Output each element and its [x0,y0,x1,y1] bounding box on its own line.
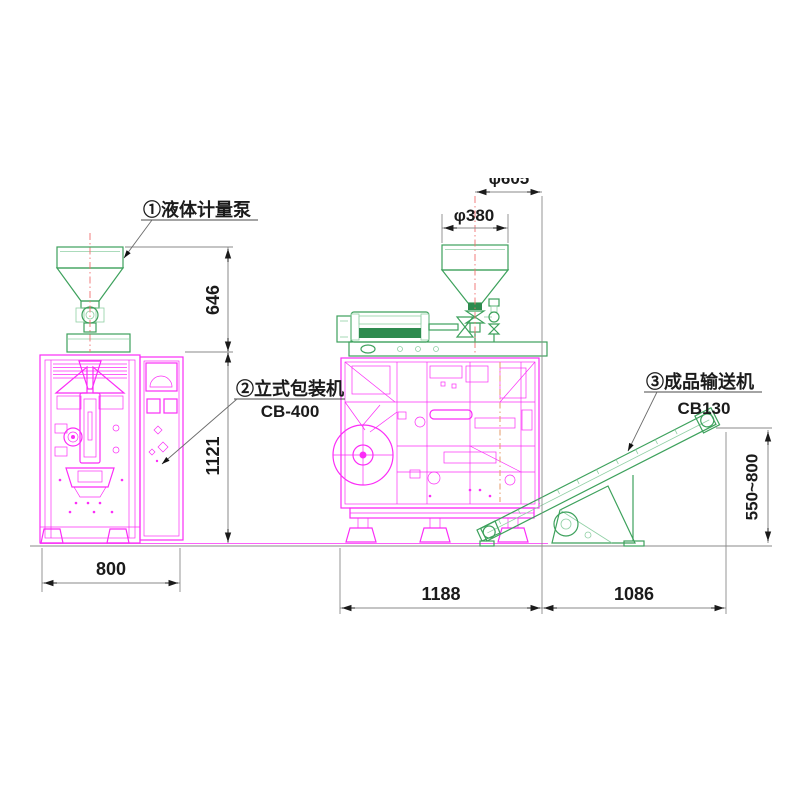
pump-base-plate [349,342,547,356]
dim-text-1188: 1188 [421,584,460,604]
dimension-top-clipped: φ605 [475,169,542,192]
dim-text-646: 646 [203,285,223,315]
output-conveyor [477,408,720,546]
drawing-canvas: 646 1121 800 1188 1086 550~800 [0,0,800,800]
conveyor-model-text: CB130 [678,399,731,418]
packing-machine-front-view [40,355,140,543]
film-roll [333,405,397,485]
packer-label-text: ②立式包装机 [236,378,344,399]
panel-button [164,399,177,413]
metering-pump-hopper-front [57,233,130,352]
machine-layout-drawing: 646 1121 800 1188 1086 550~800 [0,0,800,800]
dim-text-800: 800 [96,559,126,579]
dim-text-1121: 1121 [203,436,223,475]
dimension-800: 800 [42,548,180,592]
machine-foot [41,529,63,543]
dim-text-550-800: 550~800 [743,454,762,521]
panel-button [147,399,160,413]
dim-text-phi380: φ380 [454,206,495,225]
machine-foot [346,528,376,542]
label-packing-machine: ②立式包装机 CB-400 [162,378,345,464]
dim-text-top-clipped: φ605 [489,169,530,188]
relief-valve [489,299,499,306]
machine-foot [107,529,129,543]
packer-model-text: CB-400 [261,402,320,421]
pump-label-text: ①液体计量泵 [143,199,251,220]
label-metering-pump: ①液体计量泵 [124,199,258,258]
dim-text-1086: 1086 [614,584,654,604]
control-panel [140,357,183,540]
conveyor-label-text: ③成品输送机 [646,371,754,392]
pump-valve [457,317,473,337]
forming-funnel [79,361,101,389]
machine-foot [420,528,450,542]
conveyor-stand [552,486,635,543]
dimension-phi380: φ380 [442,206,508,243]
gauge-dial [150,376,172,387]
forming-tube [80,393,100,463]
label-conveyor: ③成品输送机 CB130 [628,371,762,451]
conveyor-motor [554,512,578,536]
metering-pump-side-view [337,312,547,356]
machine-foot [498,528,528,542]
dimension-550-800: 550~800 [716,428,772,543]
piston-rod [429,324,458,330]
dimension-1188-1086: 1188 1086 [340,196,726,614]
